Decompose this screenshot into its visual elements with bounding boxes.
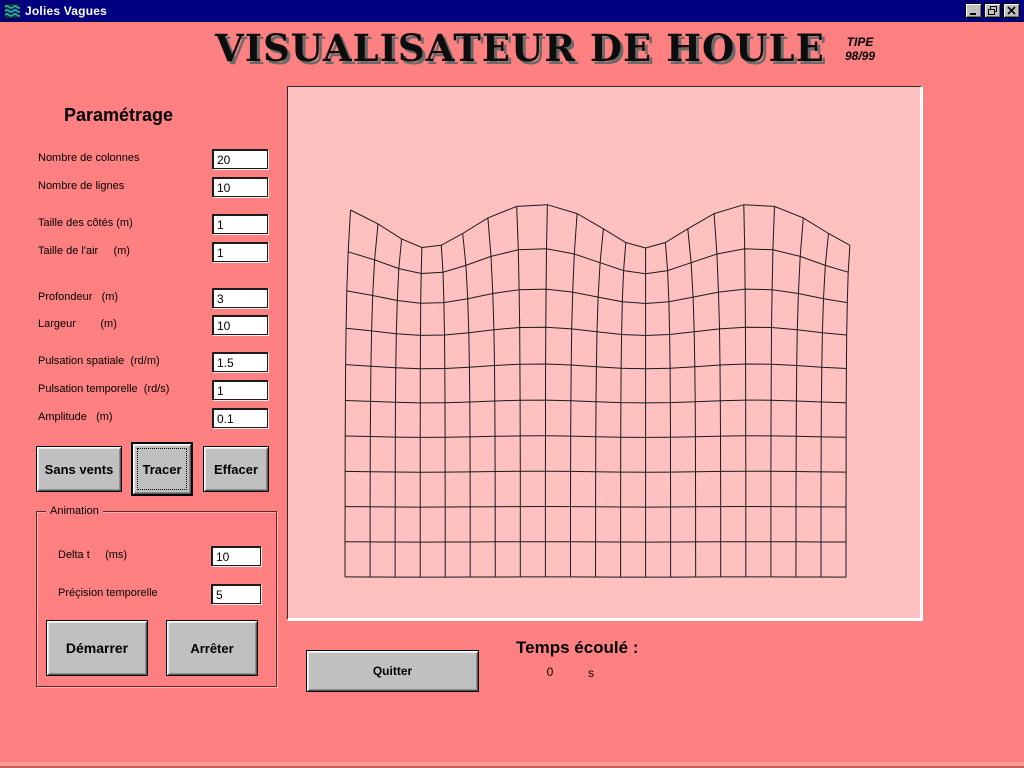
restore-icon	[988, 6, 997, 15]
air-size-input[interactable]	[212, 242, 268, 262]
depth-input[interactable]	[212, 288, 268, 308]
effacer-button[interactable]: Effacer	[203, 446, 269, 492]
elapsed-unit: s	[588, 666, 594, 680]
waves-icon	[4, 3, 20, 19]
delta-t-label: Delta t (ms)	[58, 549, 127, 561]
width-label: Largeur (m)	[38, 318, 117, 330]
amplitude-input[interactable]	[212, 408, 268, 428]
demarrer-button[interactable]: Démarrer	[46, 620, 148, 676]
minimize-button[interactable]	[965, 3, 982, 18]
cell-size-label: Taille des côtés (m)	[38, 217, 133, 229]
tracer-button[interactable]: Tracer	[131, 442, 193, 496]
arreter-button[interactable]: Arrêter	[166, 620, 258, 676]
elapsed-label: Temps écoulé :	[516, 638, 639, 658]
animation-legend: Animation	[46, 505, 103, 517]
titlebar: Jolies Vagues	[0, 0, 1024, 22]
spatial-pulsation-input[interactable]	[212, 352, 268, 372]
restore-button[interactable]	[984, 3, 1001, 18]
delta-t-input[interactable]	[211, 546, 261, 566]
wave-mesh	[288, 87, 920, 618]
sans-vents-button[interactable]: Sans vents	[36, 446, 122, 492]
elapsed-value: 0	[538, 665, 562, 679]
time-precision-label: Préçision temporelle	[58, 587, 158, 599]
tipe-badge: TIPE 98/99	[818, 35, 902, 63]
time-precision-input[interactable]	[211, 584, 261, 604]
params-heading: Paramétrage	[64, 105, 173, 126]
minimize-icon	[969, 6, 978, 15]
amplitude-label: Amplitude (m)	[38, 411, 113, 423]
close-icon	[1007, 6, 1016, 15]
temporal-pulsation-input[interactable]	[212, 380, 268, 400]
rows-label: Nombre de lignes	[38, 180, 124, 192]
air-size-label: Taille de l'air (m)	[38, 245, 130, 257]
page-title: VISUALISATEUR DE HOULE	[215, 26, 765, 70]
depth-label: Profondeur (m)	[38, 291, 118, 303]
window-title: Jolies Vagues	[25, 4, 965, 18]
width-input[interactable]	[212, 315, 268, 335]
temporal-pulsation-label: Pulsation temporelle (rd/s)	[38, 383, 169, 395]
cell-size-input[interactable]	[212, 214, 268, 234]
columns-label: Nombre de colonnes	[38, 152, 140, 164]
wave-canvas	[287, 86, 923, 621]
rows-input[interactable]	[212, 177, 268, 197]
close-button[interactable]	[1003, 3, 1020, 18]
window-bottom-edge	[0, 762, 1024, 768]
quitter-button[interactable]: Quitter	[306, 650, 479, 692]
columns-input[interactable]	[212, 149, 268, 169]
spatial-pulsation-label: Pulsation spatiale (rd/m)	[38, 355, 160, 367]
